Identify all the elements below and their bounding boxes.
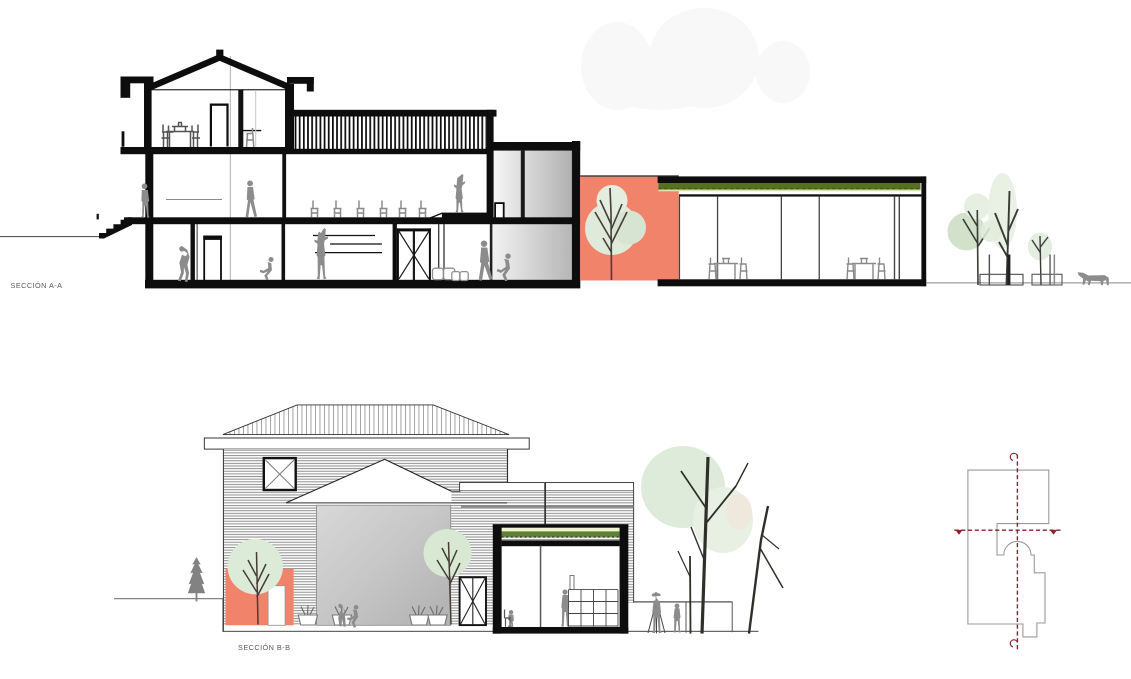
svg-text:SECCIÓN B-B: SECCIÓN B-B <box>238 643 290 652</box>
svg-text:SECCIÓN A-A: SECCIÓN A-A <box>11 281 63 290</box>
